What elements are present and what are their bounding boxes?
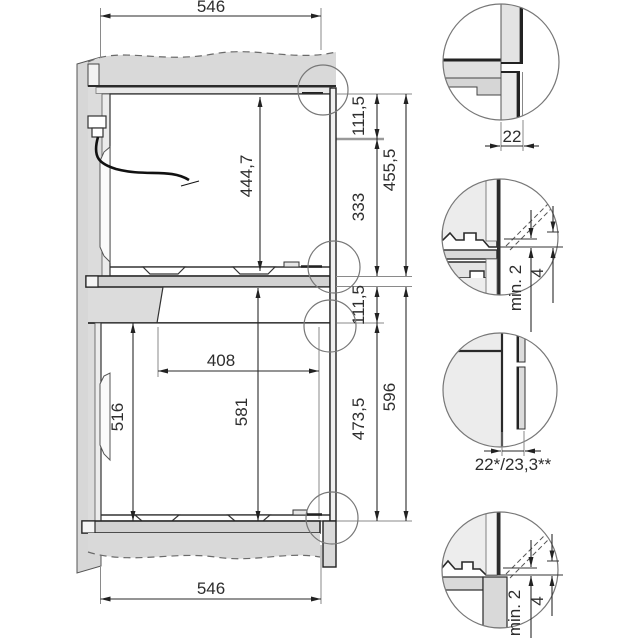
detail-min-gap-label-2: min. 2 xyxy=(505,590,524,636)
countertop-trim xyxy=(96,88,332,94)
dim-lower-total-label: 596 xyxy=(380,383,399,411)
dim-lower-niche-height-label: 516 xyxy=(108,403,127,431)
detail-front-thickness-label: 22 xyxy=(503,127,522,146)
appliance-foot xyxy=(143,267,185,274)
appliance-front-edge xyxy=(330,88,336,521)
dim-upper-offset-label: 111,5 xyxy=(349,96,368,136)
dim-lower-cutout-width-label: 408 xyxy=(207,351,235,370)
dim-lower-inner-label: 473,5 xyxy=(349,398,368,441)
installation-diagram: 546 546 444,7 408 516 581 111,5 333 455,… xyxy=(0,0,640,640)
detail-vent-gap-label: 4 xyxy=(528,268,547,277)
countertop xyxy=(88,52,336,98)
dim-lower-appliance-height-label: 581 xyxy=(232,398,251,426)
appliance-foot xyxy=(228,515,270,521)
power-socket xyxy=(88,116,106,128)
appliance-foot xyxy=(233,267,275,274)
dim-top-width-label: 546 xyxy=(197,0,225,16)
dim-bottom-width-label: 546 xyxy=(197,579,225,598)
dim-upper-total-label: 455,5 xyxy=(380,149,399,192)
dim-upper-inner-label: 333 xyxy=(349,193,368,221)
lower-appliance-top xyxy=(157,287,330,323)
appliance-foot xyxy=(135,515,179,521)
detail-vent-gap-label-2: 4 xyxy=(528,596,547,605)
dim-upper-niche-height-label: 444,7 xyxy=(237,155,256,198)
upper-niche-interior xyxy=(110,94,330,276)
dim-lower-offset-label: 111,5 xyxy=(349,285,368,325)
divider-shelf xyxy=(86,276,330,287)
detail-front-thickness-variants-label: 22*/23,3** xyxy=(475,455,552,474)
bottom-shelf xyxy=(82,521,320,559)
detail-min-gap-label: min. 2 xyxy=(506,265,525,311)
